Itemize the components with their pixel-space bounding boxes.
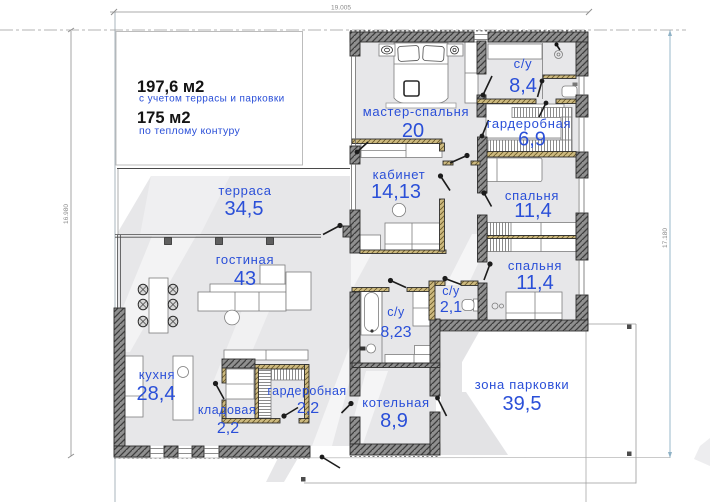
svg-text:28,4: 28,4 (137, 383, 176, 405)
svg-text:8,4: 8,4 (509, 75, 537, 97)
svg-text:39,5: 39,5 (503, 393, 542, 415)
svg-text:20: 20 (402, 120, 424, 142)
svg-text:с/у: с/у (442, 284, 460, 298)
svg-text:по теплому контуру: по теплому контуру (139, 125, 240, 137)
svg-text:34,5: 34,5 (225, 198, 264, 220)
svg-text:с/у: с/у (387, 305, 405, 319)
svg-text:спальня: спальня (508, 258, 562, 273)
svg-text:гостиная: гостиная (216, 252, 274, 267)
svg-text:зона парковки: зона парковки (475, 377, 570, 392)
svg-text:14,13: 14,13 (371, 181, 421, 203)
svg-text:с учетом террасы и парковки: с учетом террасы и парковки (139, 94, 285, 105)
svg-text:котельная: котельная (362, 395, 430, 410)
svg-text:с/у: с/у (514, 56, 533, 71)
svg-text:мастер-спальня: мастер-спальня (363, 104, 469, 119)
svg-text:кладовая: кладовая (198, 403, 256, 417)
svg-text:17.180: 17.180 (662, 228, 669, 248)
svg-text:2,1: 2,1 (440, 299, 462, 316)
svg-text:16.980: 16.980 (63, 204, 70, 224)
svg-text:2,2: 2,2 (297, 400, 319, 417)
svg-text:6,9: 6,9 (518, 129, 546, 151)
svg-text:11,4: 11,4 (516, 272, 553, 294)
svg-text:2,2: 2,2 (217, 420, 239, 437)
svg-text:8,9: 8,9 (380, 410, 408, 432)
svg-text:кухня: кухня (139, 367, 176, 382)
svg-text:8,23: 8,23 (380, 324, 411, 341)
svg-text:гардеробная: гардеробная (267, 384, 346, 398)
svg-text:43: 43 (234, 268, 256, 290)
svg-text:19.005: 19.005 (331, 5, 351, 12)
svg-text:11,4: 11,4 (514, 200, 551, 222)
svg-text:терраса: терраса (218, 183, 271, 198)
svg-text:кабинет: кабинет (373, 167, 426, 182)
